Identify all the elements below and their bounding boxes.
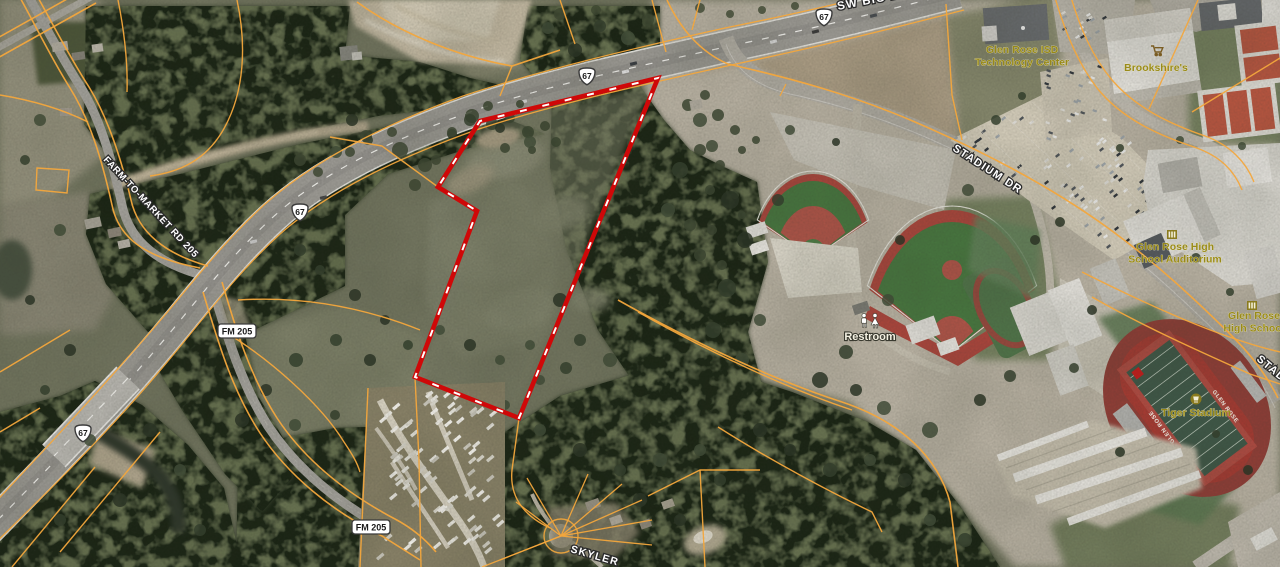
svg-text:Glen Rose: Glen Rose: [1228, 310, 1280, 322]
svg-text:67: 67: [582, 71, 592, 81]
svg-text:Brookshire's: Brookshire's: [1124, 62, 1188, 74]
svg-text:Tiger Stadium: Tiger Stadium: [1161, 407, 1231, 419]
svg-text:School Auditorium: School Auditorium: [1128, 254, 1222, 266]
svg-text:FM 205: FM 205: [356, 523, 387, 533]
svg-text:Restroom: Restroom: [844, 331, 896, 343]
svg-text:High School: High School: [1223, 323, 1280, 335]
svg-text:67: 67: [295, 207, 305, 217]
svg-text:67: 67: [819, 12, 829, 22]
svg-text:Technology Center: Technology Center: [975, 57, 1069, 69]
svg-text:Glen Rose ISD: Glen Rose ISD: [986, 44, 1059, 56]
svg-text:67: 67: [78, 428, 88, 438]
svg-text:FM 205: FM 205: [222, 327, 253, 337]
svg-text:Glen Rose High: Glen Rose High: [1136, 241, 1214, 253]
